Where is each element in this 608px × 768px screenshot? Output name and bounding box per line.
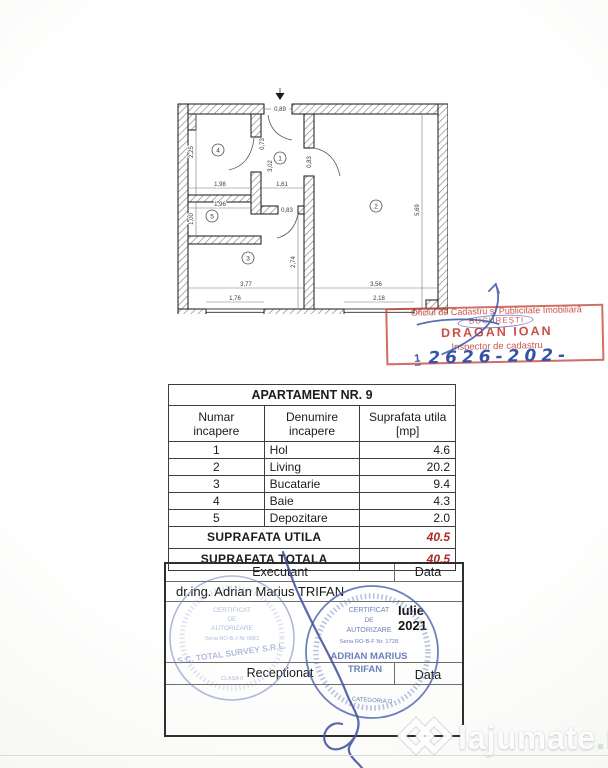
- stamp-text: AUTORIZARE: [347, 627, 392, 634]
- table-header-row: Numar incapere Denumire incapere Suprafa…: [169, 406, 456, 442]
- door-arcs: [229, 115, 340, 238]
- dim-room4-w: 1,98: [214, 182, 226, 188]
- apartment-area-table: APARTAMENT NR. 9 Numar incapere Denumire…: [168, 384, 456, 571]
- stamp-text: Seria RO-B-J Nr 0883: [205, 636, 259, 642]
- suprafata-utila-value: 40.5: [360, 527, 456, 549]
- row-area: 9.4: [360, 476, 456, 493]
- row-area: 20.2: [360, 459, 456, 476]
- row-num: 2: [169, 459, 265, 476]
- stamp-text: AUTORIZARE: [211, 625, 253, 632]
- north-arrow-icon: [276, 88, 285, 100]
- col-header-denumire: Denumire incapere: [264, 406, 360, 442]
- dim-room5-h: 1,00: [189, 213, 195, 225]
- table-title-row: APARTAMENT NR. 9: [169, 385, 456, 406]
- floor-plan-drawing: 0,89 2,25 1,98 0,73 3,02 1,61 0,83 0,83 …: [176, 78, 448, 314]
- stamp-text: Seria RO-B-F Nr. 1728: [340, 639, 399, 645]
- room-number-circles: [206, 144, 382, 264]
- signature-block: Executant Data dr.ing. Adrian Marius TRI…: [164, 562, 464, 737]
- room-3-label: 3: [246, 256, 250, 263]
- scan-edge-line: [0, 755, 608, 756]
- row-num: 4: [169, 493, 265, 510]
- dim-room3-w: 3,77: [240, 282, 252, 288]
- row-num: 1: [169, 442, 265, 459]
- table-row: 4 Baie 4.3: [169, 493, 456, 510]
- row-name: Bucatarie: [264, 476, 360, 493]
- stamp-person-name: TRIFAN: [348, 664, 382, 675]
- row-num: 3: [169, 476, 265, 493]
- dim-hall-h: 3,02: [268, 160, 274, 172]
- row-num: 5: [169, 510, 265, 527]
- dim-door-room2: 0,83: [307, 156, 313, 168]
- stamp-person-name: ADRIAN MARIUS: [330, 651, 407, 662]
- watermark-tld: .ro: [596, 719, 608, 756]
- table-row: 5 Depozitare 2.0: [169, 510, 456, 527]
- dim-hall-w: 1,61: [276, 182, 288, 188]
- table-title: APARTAMENT NR. 9: [169, 385, 456, 406]
- dim-room2-h: 5,69: [415, 204, 421, 216]
- watermark: lajumate.ro: [394, 716, 608, 760]
- stamp-text: CERTIFICAT: [213, 607, 251, 614]
- stamp-text: CERTIFICAT: [349, 607, 390, 614]
- dim-room3-h: 2,74: [291, 256, 297, 268]
- room-4-label: 4: [216, 148, 220, 155]
- row-area: 4.6: [360, 442, 456, 459]
- table-row: 2 Living 20.2: [169, 459, 456, 476]
- person-round-stamp: CERTIFICAT DE AUTORIZARE Seria RO-B-F Nr…: [306, 586, 438, 718]
- dim-window-room3: 1,76: [229, 296, 241, 302]
- dim-room5-w: 1,96: [214, 202, 226, 208]
- row-area: 2.0: [360, 510, 456, 527]
- dim-door-room4: 0,73: [260, 138, 266, 150]
- row-name: Depozitare: [264, 510, 360, 527]
- company-round-stamp: CERTIFICAT DE AUTORIZARE Seria RO-B-J Nr…: [170, 576, 294, 700]
- room-5-label: 5: [210, 214, 214, 221]
- col-header-suprafata: Suprafata utila [mp]: [360, 406, 456, 442]
- row-area: 4.3: [360, 493, 456, 510]
- cadastru-office-stamp: Oficiul de Cadastru și Publicitate Imobi…: [385, 301, 608, 386]
- table-row: 1 Hol 4.6: [169, 442, 456, 459]
- dim-entrance: 0,89: [274, 107, 286, 113]
- stamp-text: DE: [228, 617, 236, 623]
- dim-window-room2: 2,18: [373, 296, 385, 302]
- suprafata-utila-row: SUPRAFATA UTILA 40.5: [169, 527, 456, 549]
- room-1-label: 1: [278, 156, 282, 163]
- dim-room4-h: 2,25: [189, 146, 195, 158]
- dim-door-room3: 0,83: [281, 208, 293, 214]
- scanned-cadastral-document: 0,89 2,25 1,98 0,73 3,02 1,61 0,83 0,83 …: [0, 0, 608, 768]
- lajumate-logo-icon: [394, 716, 458, 760]
- suprafata-utila-label: SUPRAFATA UTILA: [169, 527, 360, 549]
- stamp-text: DE: [364, 617, 374, 624]
- room-2-label: 2: [374, 204, 378, 211]
- stamp-category: CATEGORIA D: [352, 697, 394, 706]
- room-numbers: 1 2 3 4 5: [210, 148, 378, 263]
- watermark-text: lajumate.ro: [458, 719, 608, 757]
- table-row: 3 Bucatarie 9.4: [169, 476, 456, 493]
- row-name: Living: [264, 459, 360, 476]
- col-header-numar: Numar incapere: [169, 406, 265, 442]
- row-name: Hol: [264, 442, 360, 459]
- pen-scribble: [385, 276, 608, 391]
- stamp-company-name: S.C. TOTAL SURVEY S.R.L.: [177, 640, 287, 665]
- stamp-text: CLASA II: [221, 676, 244, 682]
- dim-room2-w: 3,56: [370, 282, 382, 288]
- row-name: Baie: [264, 493, 360, 510]
